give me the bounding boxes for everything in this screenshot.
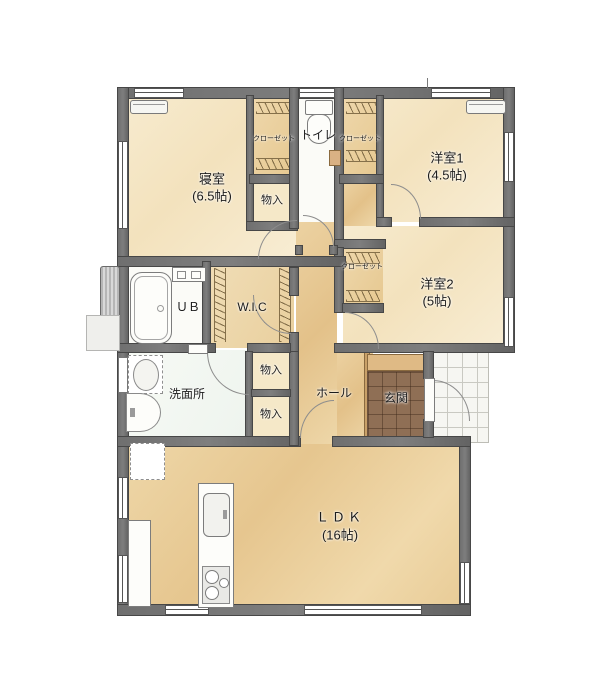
hanger-rod-icon: [256, 102, 294, 114]
label-closet-bedroom: クローゼット: [253, 136, 295, 143]
label-bedroom-name: 寝室: [199, 173, 225, 186]
label-western2-name: 洋室2: [420, 278, 453, 291]
label-storage-2: 物入: [260, 366, 282, 377]
label-storage-1: 物入: [261, 196, 283, 207]
bath-mirror-icon: [191, 271, 201, 279]
wall-wic-right-b: [290, 333, 298, 352]
ldk-side-counter: [128, 520, 151, 607]
label-bath: ＵＢ: [176, 301, 200, 313]
label-closet-western1: クローゼット: [339, 136, 381, 143]
wall-closet2-right: [377, 96, 383, 226]
floorplan: 寝室 (6.5帖) 洋室1 (4.5帖) 洋室2 (5帖) ＬＤＫ (16帖) …: [0, 0, 600, 699]
hanger-rod-icon: [346, 252, 380, 264]
kitchen-stove: [202, 566, 230, 604]
bath-counter: [172, 267, 206, 282]
bathtub: [130, 272, 172, 344]
wall-closet3-top: [335, 240, 385, 248]
sink-faucet-icon: [223, 510, 227, 519]
wall-closet3-bottom: [343, 304, 383, 312]
hanger-rod-icon: [346, 290, 380, 302]
door-washroom-back: [119, 358, 127, 392]
label-entrance: 玄関: [384, 392, 408, 404]
window-bedroom-top: [135, 89, 183, 97]
vent-mark: [427, 78, 428, 89]
window-ldk-right: [461, 563, 469, 603]
window-western1-top: [432, 89, 490, 97]
burner-icon: [205, 570, 219, 584]
wall-western1-bottom-r: [420, 218, 514, 226]
wall-bedroom-closet: [247, 96, 253, 230]
entrance-door-leaf: [424, 378, 435, 422]
toilet-paper-box: [329, 150, 341, 166]
label-hall: ホール: [316, 387, 352, 399]
label-storage-3: 物入: [260, 410, 282, 421]
wall-western1-bottom-l: [377, 218, 391, 226]
label-western1-name: 洋室1: [430, 152, 463, 165]
wall-storage-col-right: [290, 352, 298, 445]
wall-storage-divider: [252, 390, 290, 396]
window-toilet-top: [300, 89, 334, 97]
hanger-rod-icon: [214, 268, 226, 342]
label-closet-western2: クローゼット: [341, 264, 383, 271]
wall-entrance-right-top: [424, 352, 433, 378]
toilet-tank: [305, 100, 333, 115]
label-ldk-size: (16帖): [322, 529, 358, 542]
window-western1-right: [505, 133, 513, 181]
hanger-rod-icon: [256, 158, 294, 170]
window-ldk-left-2: [119, 556, 127, 602]
window-ldk-left-1: [119, 478, 127, 518]
wall-wic-right-a: [290, 268, 298, 295]
window-ldk-bottom-large: [305, 606, 421, 614]
kitchen-sink: [203, 493, 230, 537]
label-toilet: トイレ: [300, 129, 336, 141]
burner-icon: [219, 578, 229, 588]
wall-toilet-door-r: [330, 246, 337, 254]
vanity-faucet-icon: [130, 408, 135, 417]
hall-strip: [343, 183, 377, 226]
wall-wic-bottom-r: [248, 344, 290, 352]
label-wic: W.I.C: [237, 301, 266, 313]
label-ldk-name: ＬＤＫ: [316, 511, 364, 524]
ac-unit-western1: [466, 100, 506, 114]
wall-ldk-top-right: [333, 437, 470, 446]
label-western2-size: (5帖): [423, 295, 452, 308]
hanger-rod-icon: [346, 102, 376, 114]
room-ldk: [126, 444, 466, 609]
shoe-cabinet: [368, 355, 424, 370]
bath-folding-door: [188, 344, 208, 354]
wall-bedroom-bath: [118, 257, 345, 266]
window-western2-right: [505, 298, 513, 346]
label-western1-size: (4.5帖): [427, 169, 467, 182]
bath-faucet-icon: [177, 271, 186, 279]
wall-entrance-right-bottom: [424, 420, 433, 437]
bathtub-drain: [157, 305, 164, 312]
washing-machine: [133, 359, 159, 391]
window-bedroom-left: [119, 142, 127, 228]
label-bedroom-size: (6.5帖): [192, 190, 232, 203]
wall-closet2-bottom: [340, 175, 383, 183]
ac-unit-bedroom: [130, 100, 168, 114]
outdoor-step: [86, 315, 120, 351]
label-washroom: 洗面所: [169, 388, 205, 400]
wall-hall-left-upper: [290, 88, 298, 228]
hanger-rod-icon: [346, 150, 376, 162]
refrigerator-space: [130, 443, 165, 480]
burner-icon: [205, 586, 219, 600]
